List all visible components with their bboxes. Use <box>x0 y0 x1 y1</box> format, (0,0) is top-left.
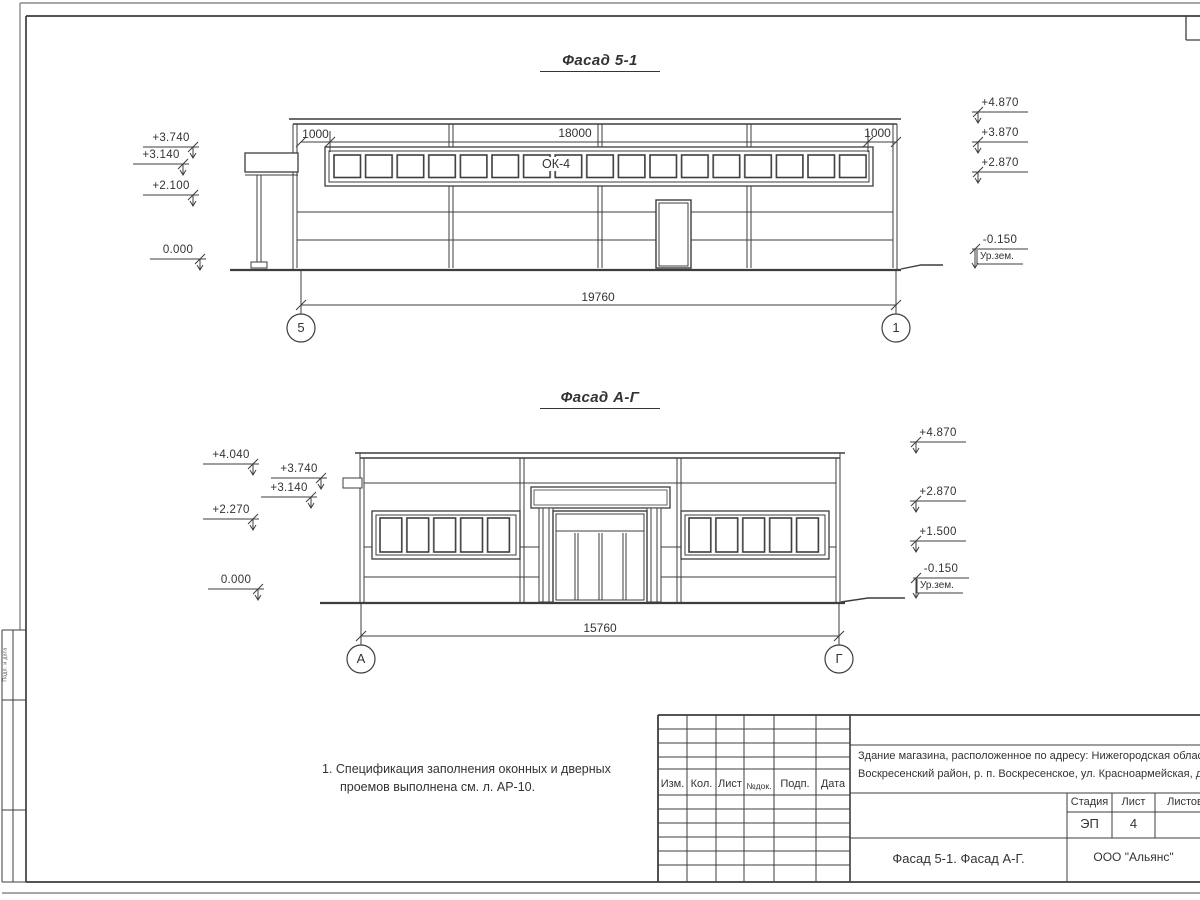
title-block-revision-grid <box>658 715 850 882</box>
facade1-door <box>656 200 691 268</box>
facade1-elev-left-0: +3.740 <box>143 132 199 144</box>
note-line-1: 1. Спецификация заполнения оконных и две… <box>322 762 611 776</box>
facade2-title: Фасад А-Г <box>540 389 660 409</box>
facade2-dim-total: 15760 <box>570 621 630 635</box>
titleblock-project-line-1: Здание магазина, расположенное по адресу… <box>858 750 1200 762</box>
facade1-elev-left-3: 0.000 <box>150 244 206 256</box>
titleblock-drawing-title: Фасад 5-1. Фасад А-Г. <box>850 851 1067 866</box>
titleblock-header-izm: Изм. <box>658 778 687 790</box>
facade1-panel-joints <box>449 124 751 268</box>
facade2-ground-level-label: Ур.зем. <box>920 580 954 591</box>
facade1-dim-1000-left: 1000 <box>288 127 343 141</box>
facade1-siding-lines <box>297 212 893 240</box>
facade1-elev-left-2: +2.100 <box>143 180 199 192</box>
facade2-roof <box>355 453 845 458</box>
facade1-dim-total: 19760 <box>568 290 628 304</box>
facade2-elev-left-3: +2.270 <box>203 504 259 516</box>
facade1-window-band <box>325 147 873 186</box>
titleblock-sheet-value: 4 <box>1112 816 1155 831</box>
titleblock-header-podp: Подп. <box>774 778 816 790</box>
facade1-drawing <box>133 107 1028 342</box>
facade1-walls <box>293 124 897 270</box>
facade1-title: Фасад 5-1 <box>540 52 660 72</box>
titleblock-company: ООО "Альянс" <box>1067 850 1200 864</box>
drawing-sheet: Фасад 5-1 1000 18000 1000 ОК-4 19760 5 1… <box>0 0 1200 900</box>
facade1-dim-18000: 18000 <box>545 126 605 140</box>
facade2-elev-right-1: +2.870 <box>910 486 966 498</box>
note-line-2: проемов выполнена см. л. АР-10. <box>340 780 535 794</box>
facade1-elev-right-1: +3.870 <box>972 127 1028 139</box>
facade1-dim-1000-right: 1000 <box>850 126 905 140</box>
facade2-side-canopy <box>343 478 362 488</box>
facade1-elev-right-3: -0.150 <box>972 234 1028 246</box>
facade1-elev-right-2: +2.870 <box>972 157 1028 169</box>
facade2-elev-left-1: +3.740 <box>271 463 327 475</box>
facade2-elev-right-2: +1.500 <box>910 526 966 538</box>
facade2-entrance <box>531 487 670 603</box>
titleblock-project-line-2: Воскресенский район, р. п. Воскресенское… <box>858 768 1200 780</box>
titleblock-stage-label: Стадия <box>1067 796 1112 808</box>
titleblock-header-data: Дата <box>816 778 850 790</box>
titleblock-sheet-label: Лист <box>1112 796 1155 808</box>
facade2-elev-right-3: -0.150 <box>913 563 969 575</box>
facade1-porch <box>245 153 298 268</box>
facade2-axis-right-label: Г <box>827 651 851 666</box>
facade1-axis-left-label: 5 <box>289 320 313 335</box>
titleblock-stage-value: ЭП <box>1067 816 1112 831</box>
facade1-elev-right-0: +4.870 <box>972 97 1028 109</box>
facade1-axis-right-label: 1 <box>884 320 908 335</box>
facade2-elev-left-4: 0.000 <box>208 574 264 586</box>
facade2-elev-left-2: +3.140 <box>261 482 317 494</box>
facade2-elev-left-0: +4.040 <box>203 449 259 461</box>
titleblock-sheets-label: Листов <box>1155 796 1200 808</box>
facade2-elev-right-0: +4.870 <box>910 427 966 439</box>
facade1-ground-level-label: Ур.зем. <box>980 251 1014 262</box>
titleblock-header-ndok: №док. <box>744 781 774 791</box>
facade1-window-label: ОК-4 <box>540 157 572 171</box>
facade1-roof <box>289 119 901 124</box>
facade1-elev-left-1: +3.140 <box>133 149 189 161</box>
titleblock-header-kol: Кол. <box>687 778 716 790</box>
facade2-window-band-right <box>681 511 829 559</box>
facade2-axis-left-label: А <box>349 651 373 666</box>
titleblock-header-list: Лист <box>716 778 744 790</box>
left-margin-stamp-text: Подп. и дата <box>3 631 14 699</box>
facade2-window-band-left <box>372 511 520 559</box>
